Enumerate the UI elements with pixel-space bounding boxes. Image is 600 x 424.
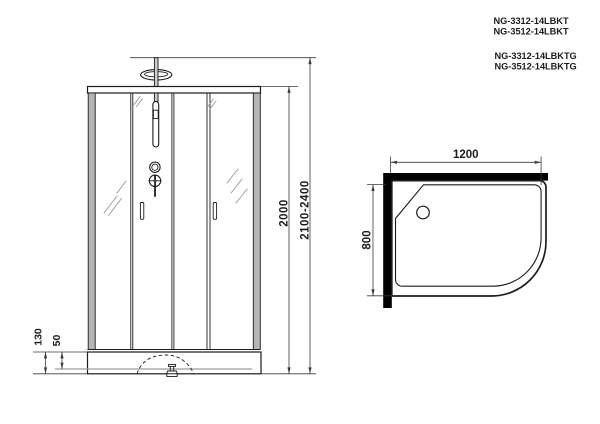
dimension-cabin-height-2000: 2000 <box>279 87 291 374</box>
dim-label-depth: 800 <box>362 230 374 249</box>
mixer-valve-icon <box>149 175 162 197</box>
dim-label-tray-height: 130 <box>33 328 45 346</box>
model-number: NG-3312-14LBKT <box>494 16 569 26</box>
shower-cabin-technical-drawing: 130 50 2000 2100-2400 <box>0 0 600 424</box>
wall-left <box>383 173 392 308</box>
shower-riser-pole <box>154 58 158 87</box>
faucet-knob-icon <box>150 162 160 172</box>
dim-label-total-height: 2100-2400 <box>300 180 312 240</box>
top-frame-bar <box>88 87 261 94</box>
shower-tray-front <box>88 352 262 374</box>
shower-rail-slider <box>153 110 158 118</box>
model-numbers: NG-3312-14LBKT NG-3512-14LBKT NG-3312-14… <box>494 16 577 72</box>
right-door-handle <box>213 203 216 220</box>
door-stile-lines <box>131 93 210 350</box>
model-number: NG-3312-14LBKTG <box>495 51 577 61</box>
dim-label-cabin-height: 2000 <box>279 199 291 227</box>
top-plan-view: 1200 800 <box>362 149 549 308</box>
dim-label-width: 1200 <box>453 149 479 161</box>
shower-rail <box>153 102 159 148</box>
front-elevation-view: 130 50 2000 2100-2400 <box>33 58 317 377</box>
glass-reflection-marks <box>104 97 247 216</box>
shower-riser-pole-lower <box>154 93 158 102</box>
wall-top <box>385 173 548 181</box>
model-number: NG-3512-14LBKTG <box>495 62 577 72</box>
right-frame-post <box>253 93 260 350</box>
model-number: NG-3512-14LBKT <box>494 27 569 37</box>
left-door-handle <box>140 203 143 220</box>
dimension-total-height-2100-2400: 2100-2400 <box>300 58 312 374</box>
tray-outline-outer <box>392 181 546 296</box>
drawing-sheet: 130 50 2000 2100-2400 <box>0 0 600 424</box>
dim-label-tray-depth: 50 <box>51 335 63 347</box>
left-frame-post <box>88 93 95 350</box>
drain-hole-icon <box>417 206 430 219</box>
